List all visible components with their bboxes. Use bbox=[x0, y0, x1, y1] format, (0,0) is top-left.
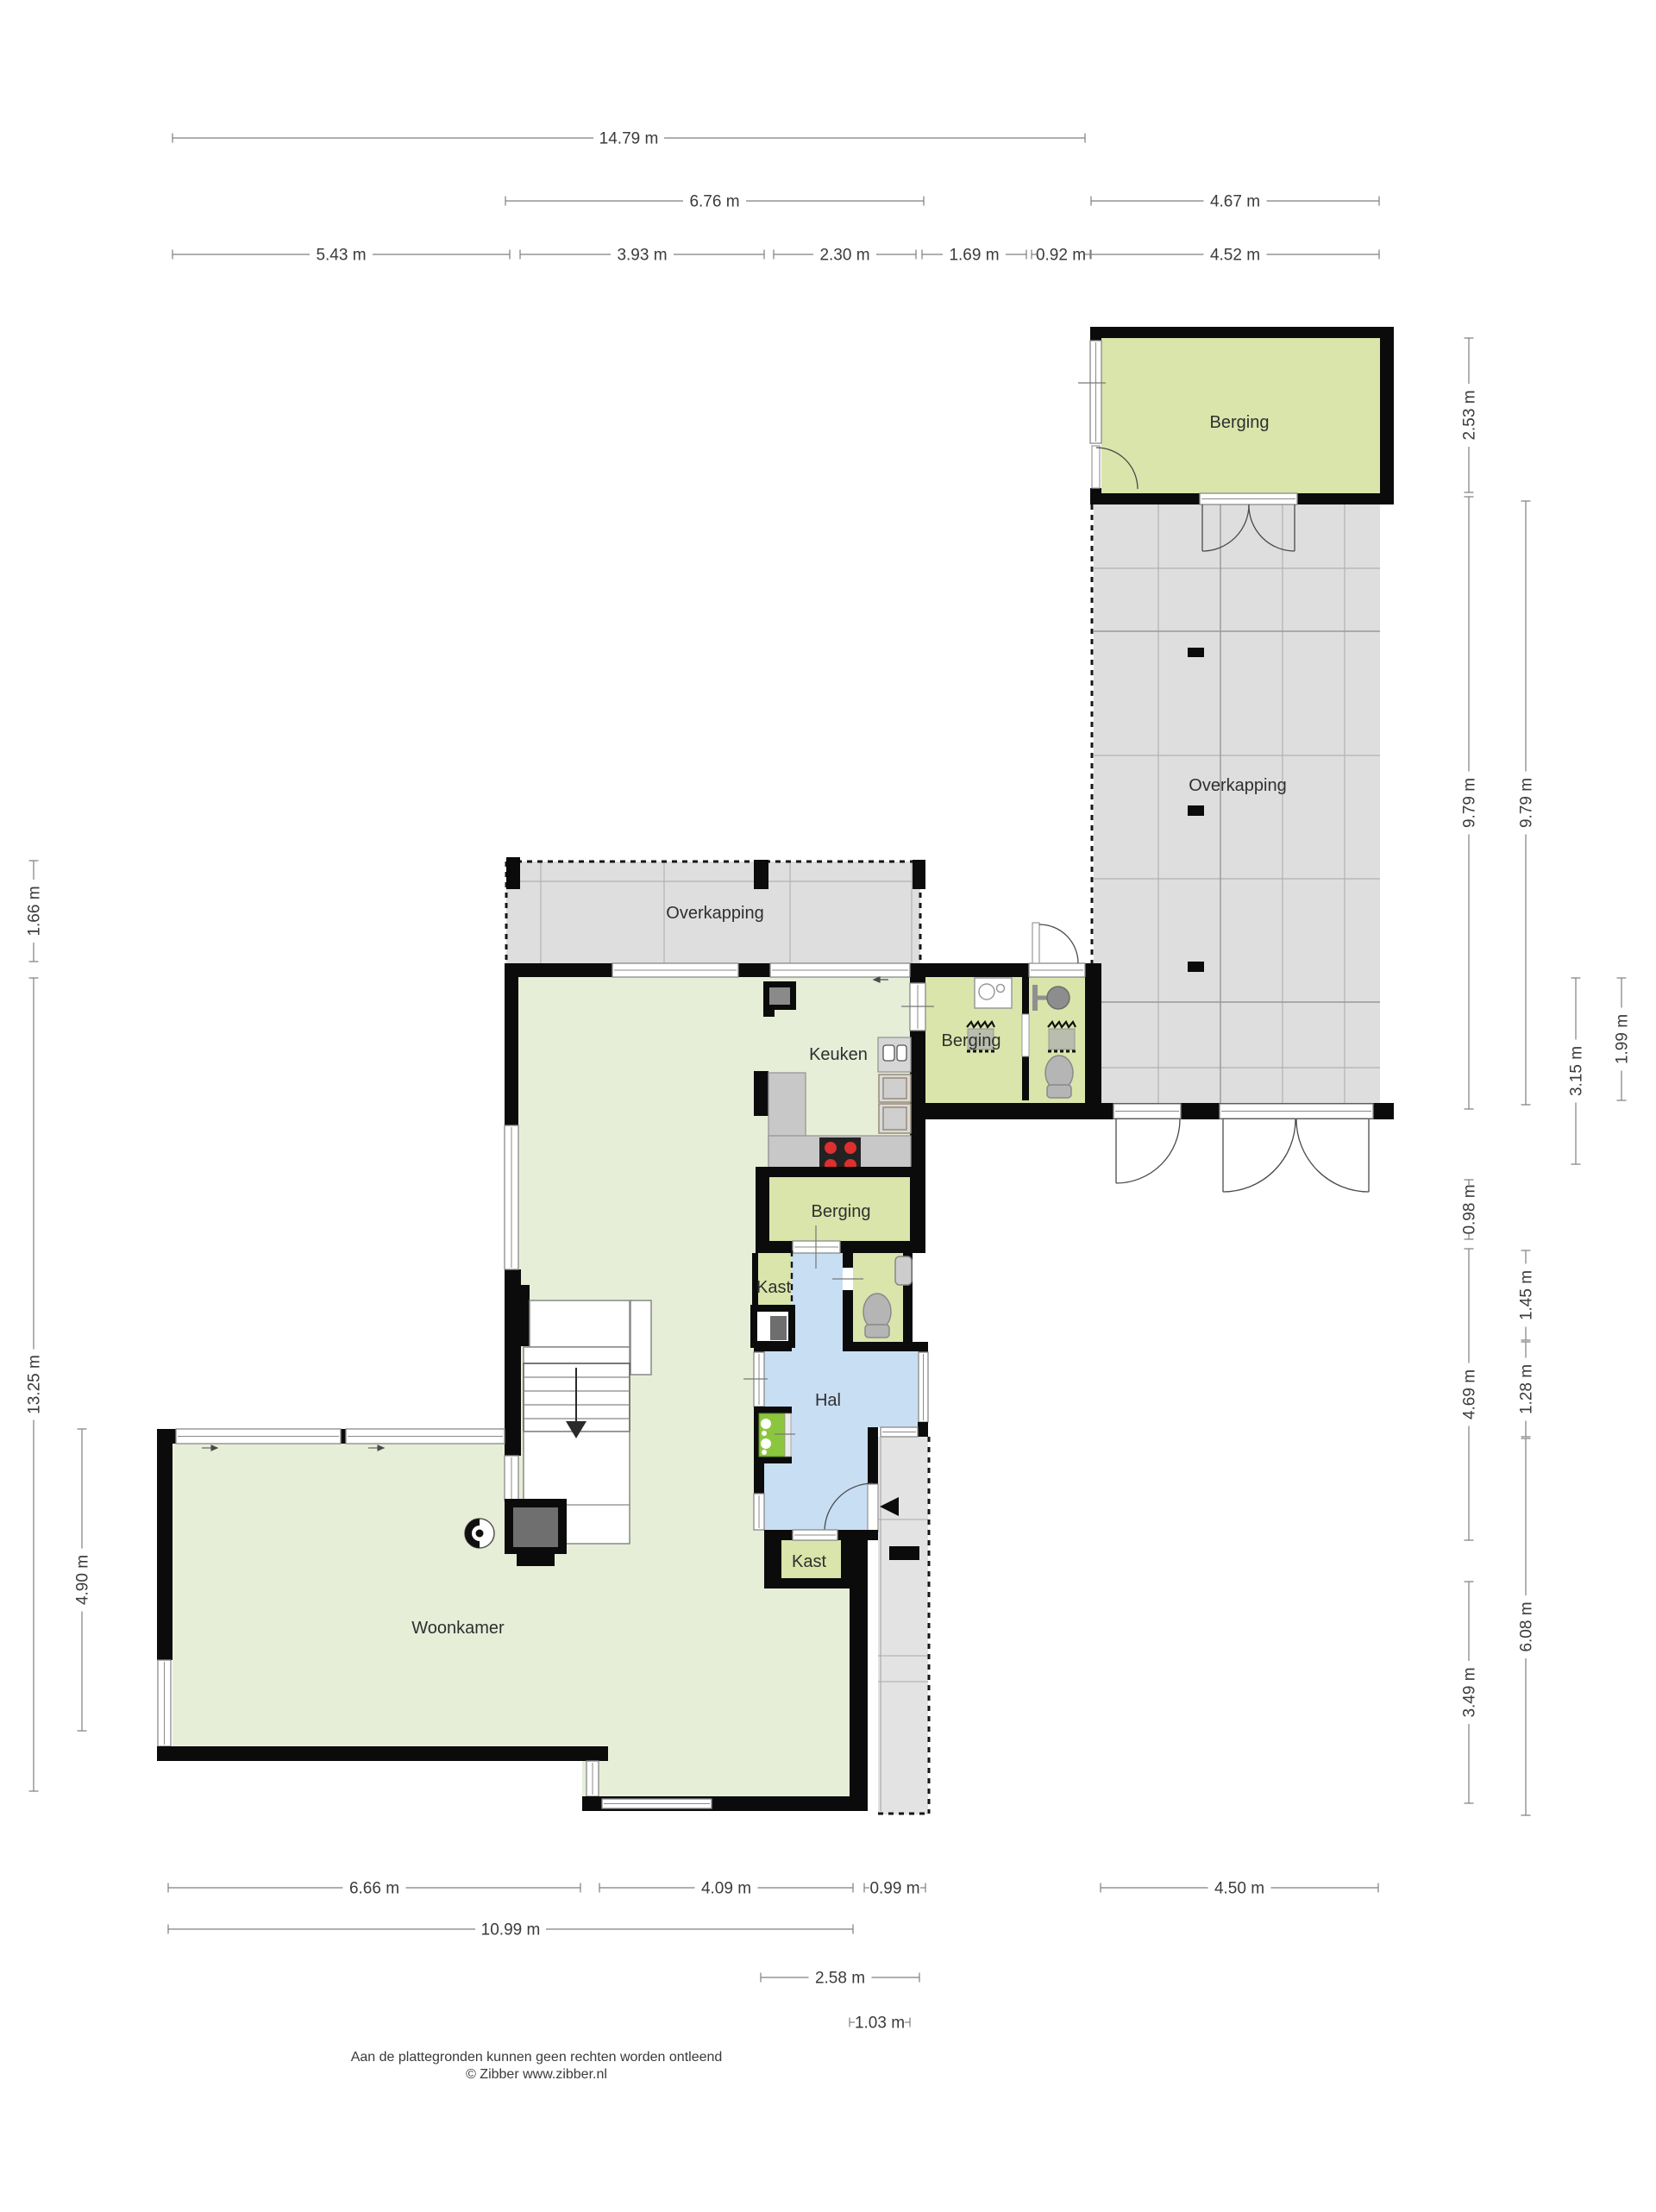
svg-text:9.79 m: 9.79 m bbox=[1461, 778, 1479, 828]
svg-text:Overkapping: Overkapping bbox=[666, 904, 763, 923]
svg-text:6.66 m: 6.66 m bbox=[349, 1880, 399, 1898]
svg-text:1.66 m: 1.66 m bbox=[26, 886, 44, 936]
svg-text:6.76 m: 6.76 m bbox=[689, 193, 739, 211]
svg-text:9.79 m: 9.79 m bbox=[1518, 778, 1536, 828]
svg-text:4.52 m: 4.52 m bbox=[1210, 247, 1260, 265]
svg-text:0.98 m: 0.98 m bbox=[1461, 1184, 1479, 1234]
svg-text:Keuken: Keuken bbox=[809, 1045, 868, 1064]
svg-text:4.90 m: 4.90 m bbox=[74, 1555, 92, 1605]
svg-text:1.28 m: 1.28 m bbox=[1518, 1364, 1536, 1414]
svg-text:2.30 m: 2.30 m bbox=[819, 247, 869, 265]
svg-text:1.45 m: 1.45 m bbox=[1518, 1270, 1536, 1320]
svg-text:Berging: Berging bbox=[812, 1202, 871, 1221]
svg-text:6.08 m: 6.08 m bbox=[1518, 1601, 1536, 1651]
svg-text:Kast: Kast bbox=[792, 1552, 826, 1571]
svg-text:4.50 m: 4.50 m bbox=[1214, 1880, 1264, 1898]
svg-text:1.99 m: 1.99 m bbox=[1614, 1014, 1632, 1064]
svg-text:4.69 m: 4.69 m bbox=[1461, 1369, 1479, 1419]
svg-text:4.09 m: 4.09 m bbox=[701, 1880, 751, 1898]
svg-text:3.49 m: 3.49 m bbox=[1461, 1667, 1479, 1717]
svg-text:© Zibber www.zibber.nl: © Zibber www.zibber.nl bbox=[466, 2067, 607, 2082]
svg-text:4.67 m: 4.67 m bbox=[1210, 193, 1260, 211]
svg-text:Berging: Berging bbox=[942, 1031, 1001, 1050]
svg-text:Aan de plattegronden kunnen ge: Aan de plattegronden kunnen geen rechten… bbox=[351, 2050, 723, 2065]
svg-text:Berging: Berging bbox=[1210, 413, 1270, 432]
svg-text:13.25 m: 13.25 m bbox=[26, 1355, 44, 1414]
svg-text:14.79 m: 14.79 m bbox=[599, 130, 659, 148]
svg-text:Kast: Kast bbox=[756, 1278, 791, 1297]
svg-text:0.99 m: 0.99 m bbox=[869, 1880, 919, 1898]
svg-text:5.43 m: 5.43 m bbox=[316, 247, 366, 265]
svg-text:0.92 m: 0.92 m bbox=[1036, 247, 1086, 265]
svg-text:Hal: Hal bbox=[815, 1391, 841, 1410]
svg-text:Overkapping: Overkapping bbox=[1189, 776, 1286, 795]
svg-text:1.03 m: 1.03 m bbox=[855, 2015, 905, 2033]
svg-text:2.58 m: 2.58 m bbox=[815, 1970, 865, 1988]
svg-text:10.99 m: 10.99 m bbox=[481, 1921, 541, 1939]
svg-text:3.15 m: 3.15 m bbox=[1568, 1046, 1586, 1096]
svg-text:Woonkamer: Woonkamer bbox=[411, 1619, 505, 1638]
svg-text:3.93 m: 3.93 m bbox=[617, 247, 667, 265]
svg-text:1.69 m: 1.69 m bbox=[949, 247, 999, 265]
svg-text:2.53 m: 2.53 m bbox=[1461, 390, 1479, 440]
